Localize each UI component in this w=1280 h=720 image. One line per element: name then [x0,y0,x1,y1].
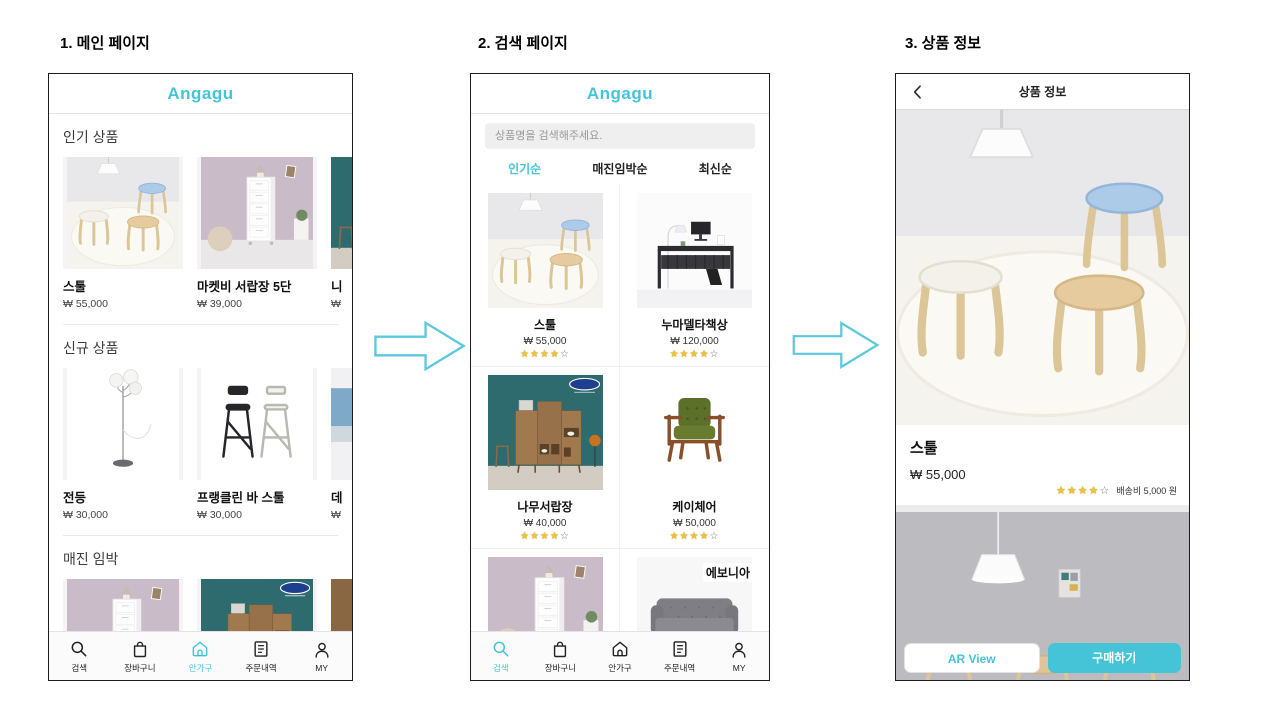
nav-item-search[interactable]: 검색 [471,632,531,680]
product-price: ₩ 30,000 [63,509,183,521]
product-card-partial[interactable]: 데 ₩ [331,368,352,521]
product-card-stool[interactable]: 스툴 ₩ 55,000 [63,157,183,310]
rating-stars: ★★★★☆ [1056,485,1110,497]
app-header: Angagu [471,74,769,114]
product-price: ₩ 40,000 [479,518,611,529]
ar-view-button[interactable]: AR View [904,643,1040,673]
rating-stars: ★★★★☆ [628,531,761,542]
flow-arrow-icon [372,320,468,372]
orders-icon [251,639,271,659]
buy-button[interactable]: 구매하기 [1048,643,1182,673]
sort-tab-newest[interactable]: 최신순 [668,160,763,177]
product-image-drawer [197,157,317,269]
product-image-wood-cabinet [488,375,603,490]
app-logo: Angagu [587,84,653,104]
product-card-partial[interactable]: 니 ₩ [331,157,352,310]
screenshot-canvas: 1. 메인 페이지 2. 검색 페이지 3. 상품 정보 Angagu 인기 상… [0,0,1280,720]
nav-item-orders[interactable]: 주문내역 [650,632,710,680]
nav-item-my[interactable]: MY [709,632,769,680]
search-icon [69,639,89,659]
rating-stars: ★★★★☆ [628,349,761,360]
grid-item-chair[interactable]: 케이체어 ₩ 50,000 ★★★★☆ [620,367,769,549]
product-name: 누마델타책상 [628,316,761,333]
product-price: ₩ 55,000 [63,298,183,310]
cta-button-row: AR View 구매하기 [904,643,1181,673]
product-info-panel: 스툴 ₩ 55,000 ★★★★☆ 배송비 5,000 원 [896,425,1189,505]
brand-overlay-text: 에보니아 [703,563,753,582]
new-products-row: 전등 ₩ 30,000 프랭클린 바 스툴 ₩ 30,000 데 ₩ [49,368,352,521]
product-image-drawer [488,557,603,633]
search-input[interactable] [485,123,755,149]
bag-icon [130,639,150,659]
grid-item-partial-sofa[interactable]: 에보니아 [620,549,769,633]
nav-item-cart[interactable]: 장바구니 [110,632,171,680]
person-icon [312,640,332,660]
back-icon[interactable] [908,82,928,102]
search-page-screen: Angagu 인기순 매진임박순 최신순 스툴 ₩ 55,000 ★★★★☆ [470,73,770,681]
product-image-floor-lamp [63,368,183,480]
bag-icon [550,639,570,659]
product-name: 나무서랍장 [479,498,611,515]
nav-item-my[interactable]: MY [291,632,352,680]
section-title-popular: 인기 상품 [49,114,352,157]
soldout-products-row [49,579,352,633]
nav-item-home[interactable]: 안가구 [590,632,650,680]
bottom-nav: 검색 장바구니 안가구 주문내역 MY [49,631,352,680]
product-price: ₩ 30,000 [197,509,317,521]
product-image-wood-cabinet [197,579,317,633]
app-header: Angagu [49,74,352,114]
product-image-bar-stools [197,368,317,480]
product-hero-image [896,110,1189,425]
product-name: 데 [331,487,352,506]
rating-stars: ★★★★☆ [479,349,611,360]
section-title-soldout: 매진 임박 [49,536,352,579]
product-image-stools [488,193,603,308]
product-price: ₩ [331,298,352,310]
nav-item-cart[interactable]: 장바구니 [531,632,591,680]
detail-header: 상품 정보 [896,74,1189,110]
product-price: ₩ 120,000 [628,336,761,347]
sort-tab-bar: 인기순 매진임박순 최신순 [471,158,769,185]
nav-item-search[interactable]: 검색 [49,632,110,680]
rating-stars: ★★★★☆ [479,531,611,542]
product-card-drawer[interactable] [63,579,183,633]
product-name: 마켓비 서랍장 5단 [197,276,317,295]
product-price: ₩ 55,000 [479,336,611,347]
caption-main-page: 1. 메인 페이지 [60,32,150,53]
product-name: 케이체어 [628,498,761,515]
product-grid: 스툴 ₩ 55,000 ★★★★☆ 누마델타책상 ₩ 120,000 ★★★★☆… [471,185,769,633]
product-image-desk [637,193,752,308]
nav-item-home[interactable]: 안가구 [170,632,231,680]
search-icon [491,639,511,659]
grid-item-stool[interactable]: 스툴 ₩ 55,000 ★★★★☆ [471,185,620,367]
grid-item-desk[interactable]: 누마델타책상 ₩ 120,000 ★★★★☆ [620,185,769,367]
product-card-barstool[interactable]: 프랭클린 바 스툴 ₩ 30,000 [197,368,317,521]
section-title-new: 신규 상품 [49,325,352,368]
product-image-drawer [63,579,183,633]
nav-item-orders[interactable]: 주문내역 [231,632,292,680]
product-image-stools [63,157,183,269]
product-image-green-chair [637,375,752,490]
flow-arrow-icon [792,320,880,370]
sort-tab-soldout[interactable]: 매진임박순 [572,160,667,177]
product-image-partial [331,579,352,633]
caption-search-page: 2. 검색 페이지 [478,32,568,53]
main-page-screen: Angagu 인기 상품 스툴 ₩ 55,000 마켓비 서랍장 5단 ₩ 39… [48,73,353,681]
person-icon [729,640,749,660]
product-price: ₩ 39,000 [197,298,317,310]
detail-page-screen: 상품 정보 스툴 ₩ 55,000 ★★★★☆ 배송비 5,000 원 AR V… [895,73,1190,681]
product-image-wood-cabinet [331,157,352,269]
product-name: 프랭클린 바 스툴 [197,487,317,506]
bottom-nav: 검색 장바구니 안가구 주문내역 MY [471,631,769,680]
grid-item-wood-cabinet[interactable]: 나무서랍장 ₩ 40,000 ★★★★☆ [471,367,620,549]
product-image-partial [331,368,352,480]
product-card-lamp[interactable]: 전등 ₩ 30,000 [63,368,183,521]
product-name: 전등 [63,487,183,506]
shipping-fee-label: 배송비 5,000 원 [1116,484,1177,497]
caption-detail-page: 3. 상품 정보 [905,32,981,53]
product-price: ₩ 50,000 [628,518,761,529]
product-card-wood-cabinet[interactable] [197,579,317,633]
product-price: ₩ [331,509,352,521]
home-icon [190,639,210,659]
app-logo: Angagu [167,84,233,104]
product-card-drawer[interactable]: 마켓비 서랍장 5단 ₩ 39,000 [197,157,317,310]
product-name: 니 [331,276,352,295]
sort-tab-popular[interactable]: 인기순 [477,160,572,177]
popular-products-row: 스툴 ₩ 55,000 마켓비 서랍장 5단 ₩ 39,000 니 ₩ [49,157,352,310]
product-name: 스툴 [63,276,183,295]
product-name: 스툴 [479,316,611,333]
orders-icon [670,639,690,659]
product-card-partial[interactable] [331,579,352,633]
home-icon [610,639,630,659]
product-name: 스툴 [910,437,1175,458]
grid-item-partial-drawer[interactable] [471,549,620,633]
page-title: 상품 정보 [1019,83,1067,100]
product-price: ₩ 55,000 [910,467,1175,482]
section-divider [896,505,1189,512]
